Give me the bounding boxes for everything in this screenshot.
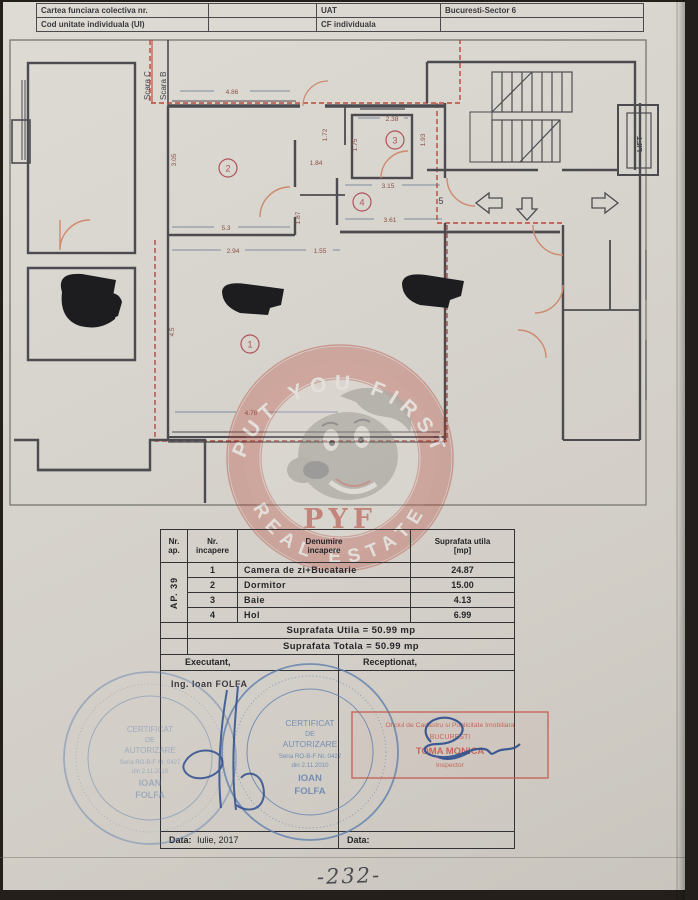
svg-text:Inspector: Inspector (436, 762, 465, 769)
svg-text:Seria RO-B-F Nr. 0427: Seria RO-B-F Nr. 0427 (279, 753, 342, 760)
svg-text:CERTIFICAT: CERTIFICAT (285, 718, 334, 728)
svg-text:BUCURESTI: BUCURESTI (430, 734, 471, 741)
paper-edge-shadow (677, 0, 685, 900)
svg-text:DE: DE (305, 731, 315, 738)
executant-signature (183, 686, 264, 810)
paper-fold-line (676, 0, 678, 900)
svg-text:IOAN: IOAN (298, 773, 322, 784)
svg-text:CERTIFICAT: CERTIFICAT (127, 725, 173, 734)
svg-text:AUTORIZARE: AUTORIZARE (283, 739, 338, 749)
svg-text:AUTORIZARE: AUTORIZARE (124, 746, 175, 755)
svg-text:FOLFA: FOLFA (135, 790, 165, 800)
svg-text:IOAN: IOAN (139, 778, 162, 788)
svg-text:din 2.11.2010: din 2.11.2010 (291, 762, 329, 769)
svg-text:din 2.11.2010: din 2.11.2010 (132, 769, 169, 775)
stamps-overlay: CERTIFICAT DE AUTORIZARE Seria RO-B-F Nr… (0, 0, 698, 900)
round-stamp-left: CERTIFICAT DE AUTORIZARE Seria RO-B-F Nr… (64, 672, 236, 844)
svg-text:Seria RO-B-F Nr. 0427: Seria RO-B-F Nr. 0427 (120, 760, 181, 766)
svg-text:FOLFA: FOLFA (294, 786, 325, 797)
scanned-document-photo: Cartea funciara colectiva nr. UAT Bucure… (0, 0, 698, 900)
svg-text:DE: DE (145, 737, 155, 744)
svg-text:Oficiul de Cadastru si Publici: Oficiul de Cadastru si Publicitate Imobi… (385, 722, 514, 729)
